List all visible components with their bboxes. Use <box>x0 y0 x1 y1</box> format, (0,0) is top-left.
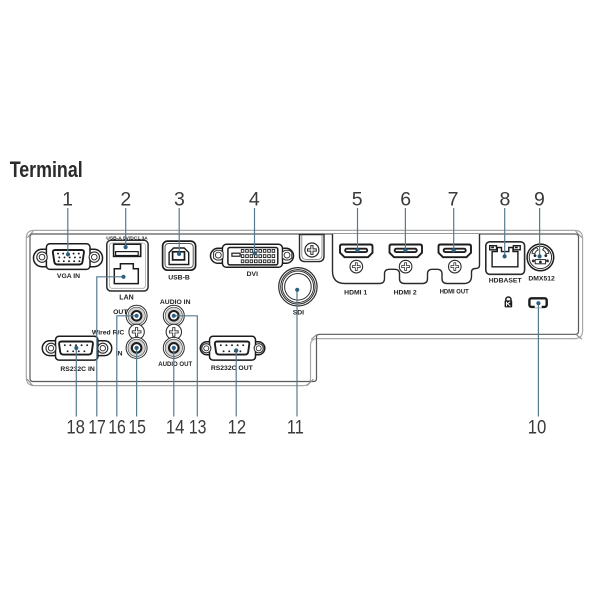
svg-text:AUDIO OUT: AUDIO OUT <box>158 361 193 368</box>
svg-text:12: 12 <box>228 417 247 439</box>
svg-text:9: 9 <box>534 189 545 211</box>
svg-text:OUT: OUT <box>113 309 128 316</box>
svg-text:16: 16 <box>108 417 126 439</box>
svg-text:11: 11 <box>287 417 304 439</box>
svg-text:RS232C OUT: RS232C OUT <box>211 365 254 372</box>
svg-text:4: 4 <box>249 189 260 211</box>
svg-text:SDI: SDI <box>293 309 304 316</box>
svg-text:15: 15 <box>128 417 146 439</box>
svg-text:10: 10 <box>528 417 547 439</box>
svg-text:DVI: DVI <box>247 271 258 278</box>
svg-text:USB-B: USB-B <box>168 274 190 281</box>
svg-text:HDMI 2: HDMI 2 <box>394 290 417 297</box>
svg-text:DMX512: DMX512 <box>528 275 555 282</box>
svg-text:HDMI OUT: HDMI OUT <box>440 288 470 295</box>
svg-text:2: 2 <box>120 189 131 211</box>
svg-text:HDMI 1: HDMI 1 <box>344 290 367 297</box>
svg-text:VGA IN: VGA IN <box>57 273 80 280</box>
svg-text:Terminal: Terminal <box>10 157 83 182</box>
svg-text:17: 17 <box>88 417 106 439</box>
svg-text:AUDIO IN: AUDIO IN <box>160 299 191 306</box>
svg-text:LAN: LAN <box>119 295 133 302</box>
svg-text:3: 3 <box>174 189 185 211</box>
svg-text:7: 7 <box>448 189 459 211</box>
svg-text:HDBASET: HDBASET <box>489 278 523 285</box>
svg-text:5: 5 <box>352 189 363 211</box>
svg-text:13: 13 <box>189 417 207 439</box>
svg-text:6: 6 <box>400 189 411 211</box>
svg-text:8: 8 <box>499 189 510 211</box>
svg-text:18: 18 <box>66 417 85 439</box>
svg-text:RS232C IN: RS232C IN <box>60 366 94 373</box>
svg-text:14: 14 <box>166 417 185 439</box>
svg-text:1: 1 <box>62 189 73 211</box>
